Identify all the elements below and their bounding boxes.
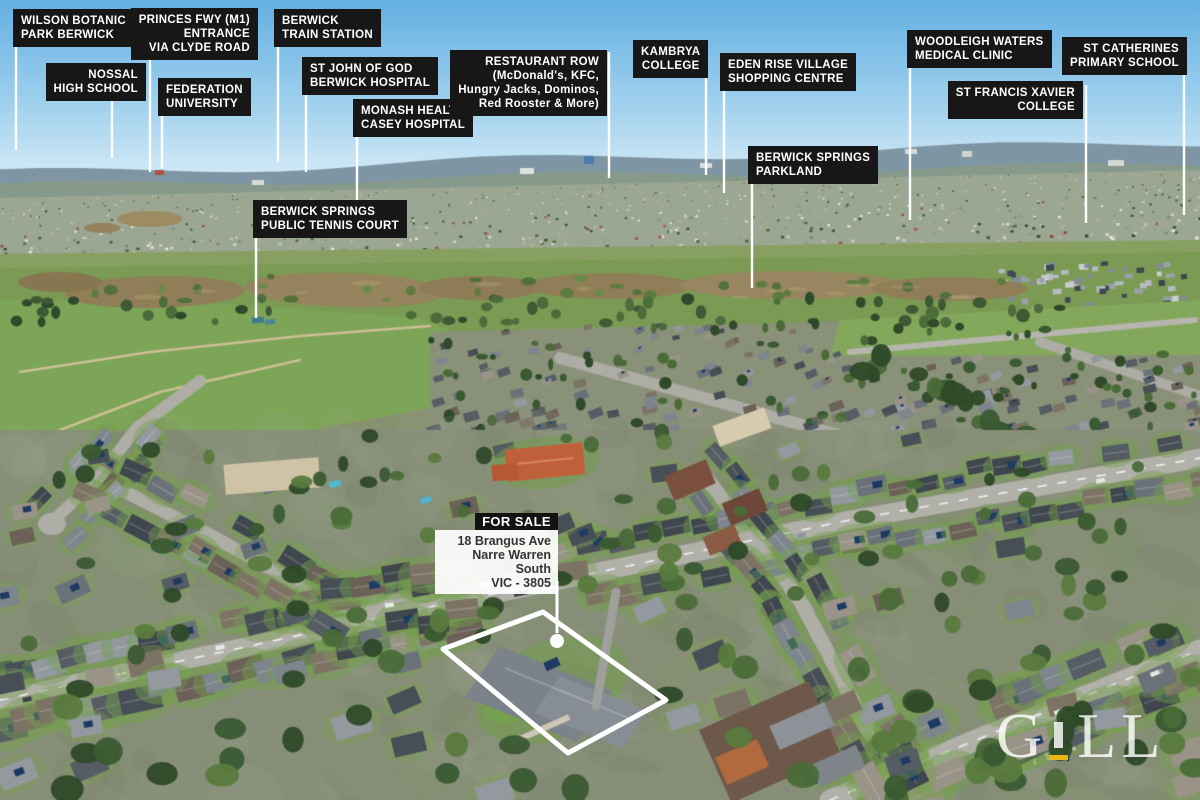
- label-line: HIGH SCHOOL: [54, 82, 138, 96]
- location-label-federation-university: FEDERATIONUNIVERSITY: [158, 78, 251, 116]
- gill-letters-ll: LL: [1077, 712, 1165, 761]
- address-line-street: 18 Brangus Ave: [442, 534, 551, 548]
- label-line: VIA CLYDE ROAD: [139, 41, 250, 55]
- label-line: EDEN RISE VILLAGE: [728, 58, 848, 72]
- label-line: PARKLAND: [756, 165, 870, 179]
- label-line: BERWICK: [282, 14, 373, 28]
- label-line: PARK BERWICK: [21, 28, 126, 42]
- label-line: NOSSAL: [54, 68, 138, 82]
- label-line: SHOPPING CENTRE: [728, 72, 848, 86]
- label-line: CASEY HOSPITAL: [361, 118, 465, 132]
- leader-lines-overlay: [0, 0, 1200, 800]
- label-line: BERWICK SPRINGS: [261, 205, 399, 219]
- for-sale-sign: FOR SALE 18 Brangus Ave Narre Warren Sou…: [435, 513, 558, 594]
- location-label-st-francis-xavier-college: ST FRANCIS XAVIERCOLLEGE: [948, 81, 1083, 119]
- gill-yellow-dash-icon: [1049, 755, 1068, 760]
- label-line: ST JOHN OF GOD: [310, 62, 430, 76]
- label-line: PRIMARY SCHOOL: [1070, 56, 1179, 70]
- for-sale-title: FOR SALE: [475, 513, 558, 530]
- location-label-eden-rise-village: EDEN RISE VILLAGESHOPPING CENTRE: [720, 53, 856, 91]
- location-label-woodleigh-waters-medical: WOODLEIGH WATERSMEDICAL CLINIC: [907, 30, 1052, 68]
- address-line-state: VIC - 3805: [442, 576, 551, 590]
- location-label-kambrya-college: KAMBRYACOLLEGE: [633, 40, 708, 78]
- label-line: WOODLEIGH WATERS: [915, 35, 1044, 49]
- property-marker-dot: [550, 634, 564, 648]
- for-sale-address: 18 Brangus Ave Narre Warren South VIC - …: [435, 530, 558, 594]
- location-label-berwick-springs-tennis: BERWICK SPRINGSPUBLIC TENNIS COURT: [253, 200, 407, 238]
- location-label-berwick-train-station: BERWICKTRAIN STATION: [274, 9, 381, 47]
- gill-i-mark: [1049, 722, 1068, 760]
- property-boundary-outline: [443, 612, 666, 753]
- label-line: ST CATHERINES: [1070, 42, 1179, 56]
- label-line: COLLEGE: [956, 100, 1075, 114]
- label-line: BERWICK HOSPITAL: [310, 76, 430, 90]
- address-line-suburb: Narre Warren South: [442, 548, 551, 576]
- label-line: ENTRANCE: [139, 27, 250, 41]
- aerial-photo-stage: WILSON BOTANICPARK BERWICKNOSSALHIGH SCH…: [0, 0, 1200, 800]
- label-line: WILSON BOTANIC: [21, 14, 126, 28]
- label-line: UNIVERSITY: [166, 97, 243, 111]
- gill-i-stem: [1054, 722, 1063, 748]
- gill-letter-g: G: [996, 712, 1042, 761]
- label-line: (McDonald's, KFC,: [458, 69, 599, 83]
- location-label-st-catherines-primary: ST CATHERINESPRIMARY SCHOOL: [1062, 37, 1187, 75]
- label-line: BERWICK SPRINGS: [756, 151, 870, 165]
- gill-watermark: G LL: [996, 712, 1165, 761]
- location-label-nossal-high-school: NOSSALHIGH SCHOOL: [46, 63, 146, 101]
- label-line: ST FRANCIS XAVIER: [956, 86, 1075, 100]
- label-line: TRAIN STATION: [282, 28, 373, 42]
- location-label-berwick-springs-parkland: BERWICK SPRINGSPARKLAND: [748, 146, 878, 184]
- location-label-wilson-botanic-park: WILSON BOTANICPARK BERWICK: [13, 9, 134, 47]
- label-line: Red Rooster & More): [458, 97, 599, 111]
- location-label-princes-fwy-entrance: PRINCES FWY (M1)ENTRANCEVIA CLYDE ROAD: [131, 8, 258, 60]
- label-line: KAMBRYA: [641, 45, 700, 59]
- label-line: FEDERATION: [166, 83, 243, 97]
- label-line: RESTAURANT ROW: [458, 55, 599, 69]
- label-line: COLLEGE: [641, 59, 700, 73]
- location-label-st-john-of-god-hospital: ST JOHN OF GODBERWICK HOSPITAL: [302, 57, 438, 95]
- location-label-restaurant-row: RESTAURANT ROW(McDonald's, KFC,Hungry Ja…: [450, 50, 607, 116]
- label-line: PUBLIC TENNIS COURT: [261, 219, 399, 233]
- label-line: MEDICAL CLINIC: [915, 49, 1044, 63]
- label-line: Hungry Jacks, Dominos,: [458, 83, 599, 97]
- label-line: PRINCES FWY (M1): [139, 13, 250, 27]
